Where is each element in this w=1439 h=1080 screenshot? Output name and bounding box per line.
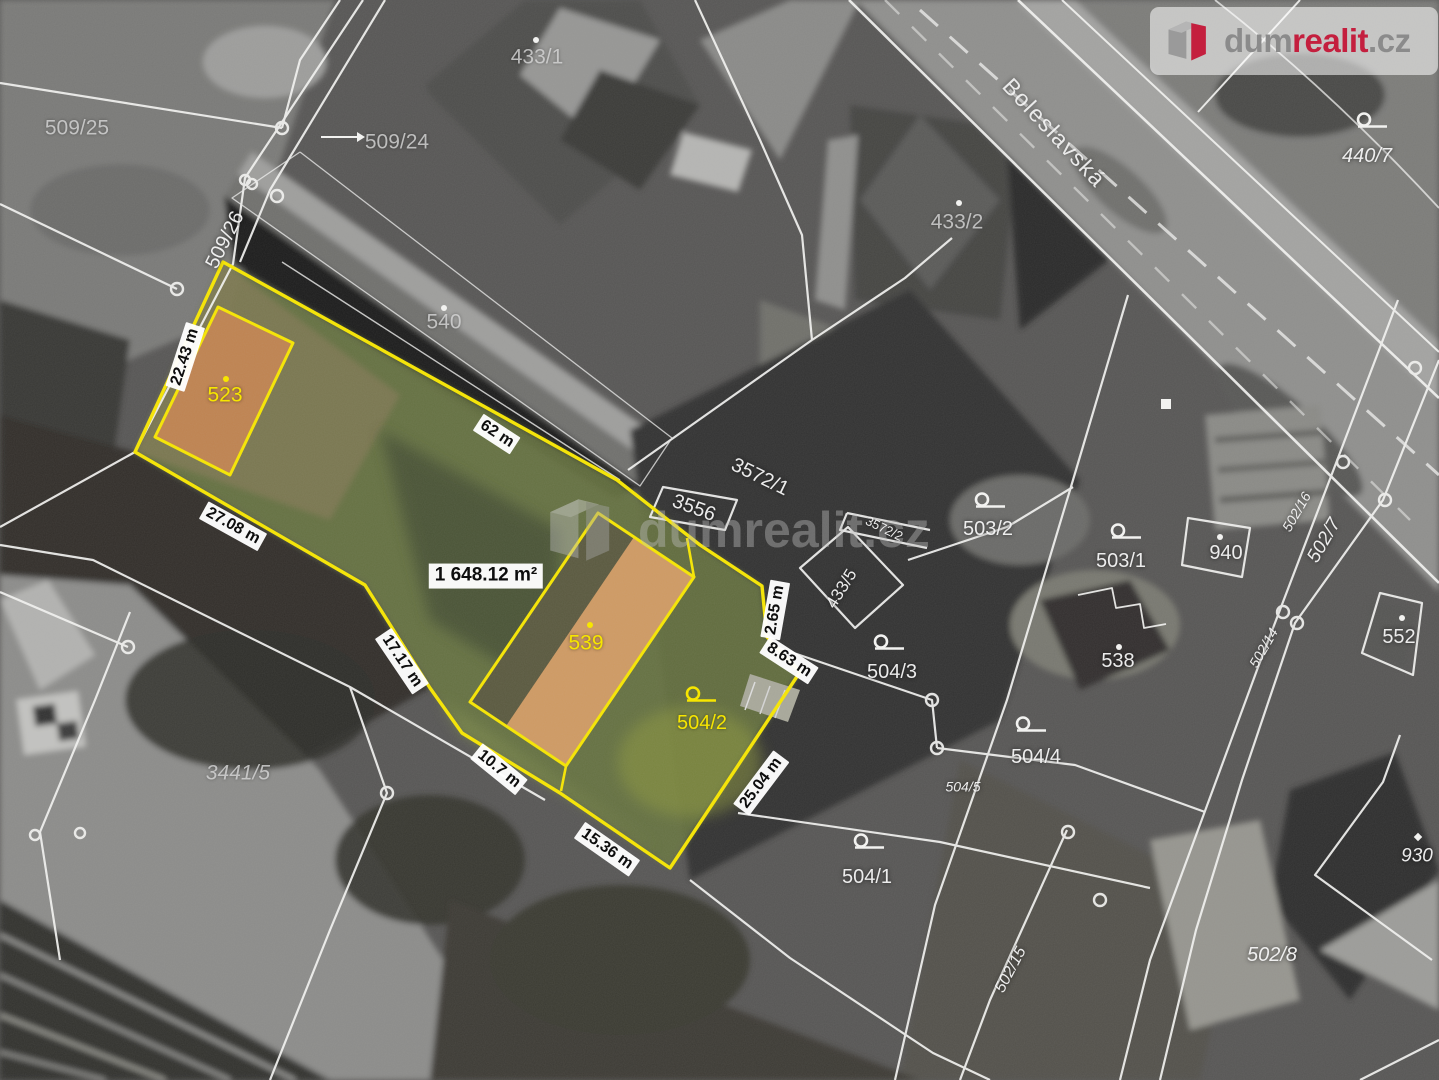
logo-text: dumrealit.cz [1224, 22, 1411, 60]
photo-grain-overlay [0, 0, 1439, 1080]
cadastral-map-stage: dumrealit.cz 509/25509/24509/26433/15404… [0, 0, 1439, 1080]
dumrealit-logo[interactable]: dumrealit.cz [1150, 7, 1438, 75]
aerial-map-canvas [0, 0, 1439, 1080]
dumrealit-logo-icon [1162, 17, 1214, 65]
